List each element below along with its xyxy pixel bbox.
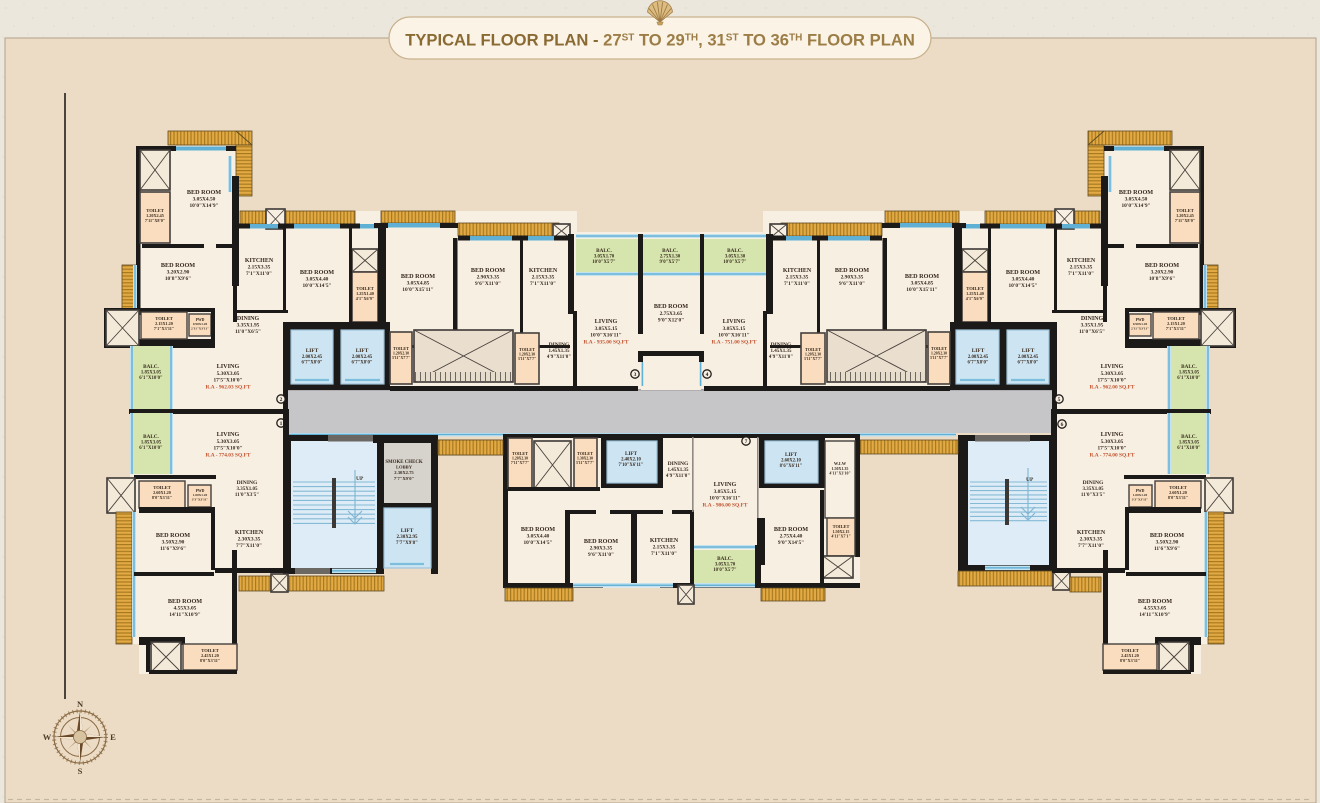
svg-text:N: N — [77, 699, 84, 709]
svg-text:UP: UP — [356, 476, 364, 482]
svg-text:TOILET2.60X1.208'0"X3'11": TOILET2.60X1.208'0"X3'11" — [1168, 485, 1188, 500]
svg-text:TYPICAL FLOOR PLAN - 27ST TO 2: TYPICAL FLOOR PLAN - 27ST TO 29TH, 31ST … — [405, 31, 915, 50]
svg-text:TOILET1.25X1.404'1"X6'9": TOILET1.25X1.404'1"X6'9" — [356, 286, 374, 301]
svg-text:TOILET1.20X2.457'11"X8'0": TOILET1.20X2.457'11"X8'0" — [1175, 208, 1195, 223]
svg-text:DINING1.45X1.354'9"X11'0": DINING1.45X1.354'9"X11'0" — [666, 461, 690, 479]
svg-text:TOILET2.45X1.208'0"X3'11": TOILET2.45X1.208'0"X3'11" — [1120, 648, 1140, 663]
svg-text:TOILET1.20X2.303'11"X7'7": TOILET1.20X2.303'11"X7'7" — [804, 347, 822, 361]
svg-text:KITCHEN2.30X3.357'7"X11'0": KITCHEN2.30X3.357'7"X11'0" — [1077, 530, 1106, 549]
svg-text:TOILET2.45X1.208'0"X3'11": TOILET2.45X1.208'0"X3'11" — [200, 648, 220, 663]
svg-text:TOILET1.50X2.154'11"X7'1": TOILET1.50X2.154'11"X7'1" — [831, 524, 850, 539]
svg-text:DINING3.35X1.9511'0"X6'5": DINING3.35X1.9511'0"X6'5" — [1079, 316, 1105, 335]
svg-text:2: 2 — [280, 397, 283, 403]
svg-text:TOILET1.20X2.457'11"X8'0": TOILET1.20X2.457'11"X8'0" — [145, 208, 165, 223]
svg-text:3: 3 — [634, 372, 637, 378]
svg-text:TOILET1.20X2.303'11"X7'7": TOILET1.20X2.303'11"X7'7" — [930, 346, 948, 360]
svg-text:4: 4 — [706, 372, 709, 378]
svg-text:KITCHEN2.15X3.357'1"X11'0": KITCHEN2.15X3.357'1"X11'0" — [1067, 258, 1096, 277]
svg-text:TOILET1.25X1.404'1"X6'9": TOILET1.25X1.404'1"X6'9" — [966, 286, 984, 301]
svg-text:DINING3.35X1.0511'0"X3'5": DINING3.35X1.0511'0"X3'5" — [235, 480, 259, 498]
svg-text:TOILET1.20X2.303'11"X7'7": TOILET1.20X2.303'11"X7'7" — [518, 347, 536, 361]
svg-text:KITCHEN2.30X3.357'7"X11'0": KITCHEN2.30X3.357'7"X11'0" — [235, 530, 264, 549]
svg-text:W: W — [43, 732, 52, 742]
svg-text:TOILET1.20X2.307'11"X7'7": TOILET1.20X2.307'11"X7'7" — [511, 451, 529, 465]
svg-text:S: S — [78, 766, 83, 776]
svg-text:E: E — [110, 732, 116, 742]
svg-text:DINING1.45X1.354'9"X11'0": DINING1.45X1.354'9"X11'0" — [769, 342, 793, 360]
svg-text:TOILET2.15X1.207'1"X3'11": TOILET2.15X1.207'1"X3'11" — [154, 316, 174, 331]
svg-text:TOILET2.15X1.207'1"X3'11": TOILET2.15X1.207'1"X3'11" — [1166, 316, 1186, 331]
svg-text:TOILET2.60X1.208'0"X3'11": TOILET2.60X1.208'0"X3'11" — [152, 485, 172, 500]
svg-text:TOILET1.20X2.303'11"X7'7": TOILET1.20X2.303'11"X7'7" — [392, 346, 410, 360]
svg-text:DINING3.35X1.9511'0"X6'5": DINING3.35X1.9511'0"X6'5" — [235, 316, 261, 335]
svg-text:1: 1 — [280, 421, 283, 427]
svg-text:5: 5 — [1058, 397, 1061, 403]
svg-text:KITCHEN2.15X3.357'1"X11'0": KITCHEN2.15X3.357'1"X11'0" — [245, 258, 274, 277]
svg-text:KITCHEN2.15X3.357'1"X11'0": KITCHEN2.15X3.357'1"X11'0" — [529, 268, 558, 287]
svg-text:KITCHEN2.15X3.357'1"X11'0": KITCHEN2.15X3.357'1"X11'0" — [783, 268, 812, 287]
svg-text:DINING3.35X1.0511'0"X3'5": DINING3.35X1.0511'0"X3'5" — [1081, 480, 1105, 498]
svg-text:UP: UP — [1026, 477, 1034, 483]
svg-text:KITCHEN2.15X3.357'1"X11'0": KITCHEN2.15X3.357'1"X11'0" — [650, 538, 679, 557]
svg-text:TOILET1.30X2.303'11"X7'7": TOILET1.30X2.303'11"X7'7" — [576, 451, 594, 465]
svg-text:DINING1.45X1.354'9"X11'0": DINING1.45X1.354'9"X11'0" — [547, 342, 571, 360]
svg-text:7: 7 — [745, 439, 748, 445]
svg-text:6: 6 — [1061, 422, 1064, 428]
svg-text:BALC.2.75X1.309'0"X5'7": BALC.2.75X1.309'0"X5'7" — [659, 248, 680, 265]
